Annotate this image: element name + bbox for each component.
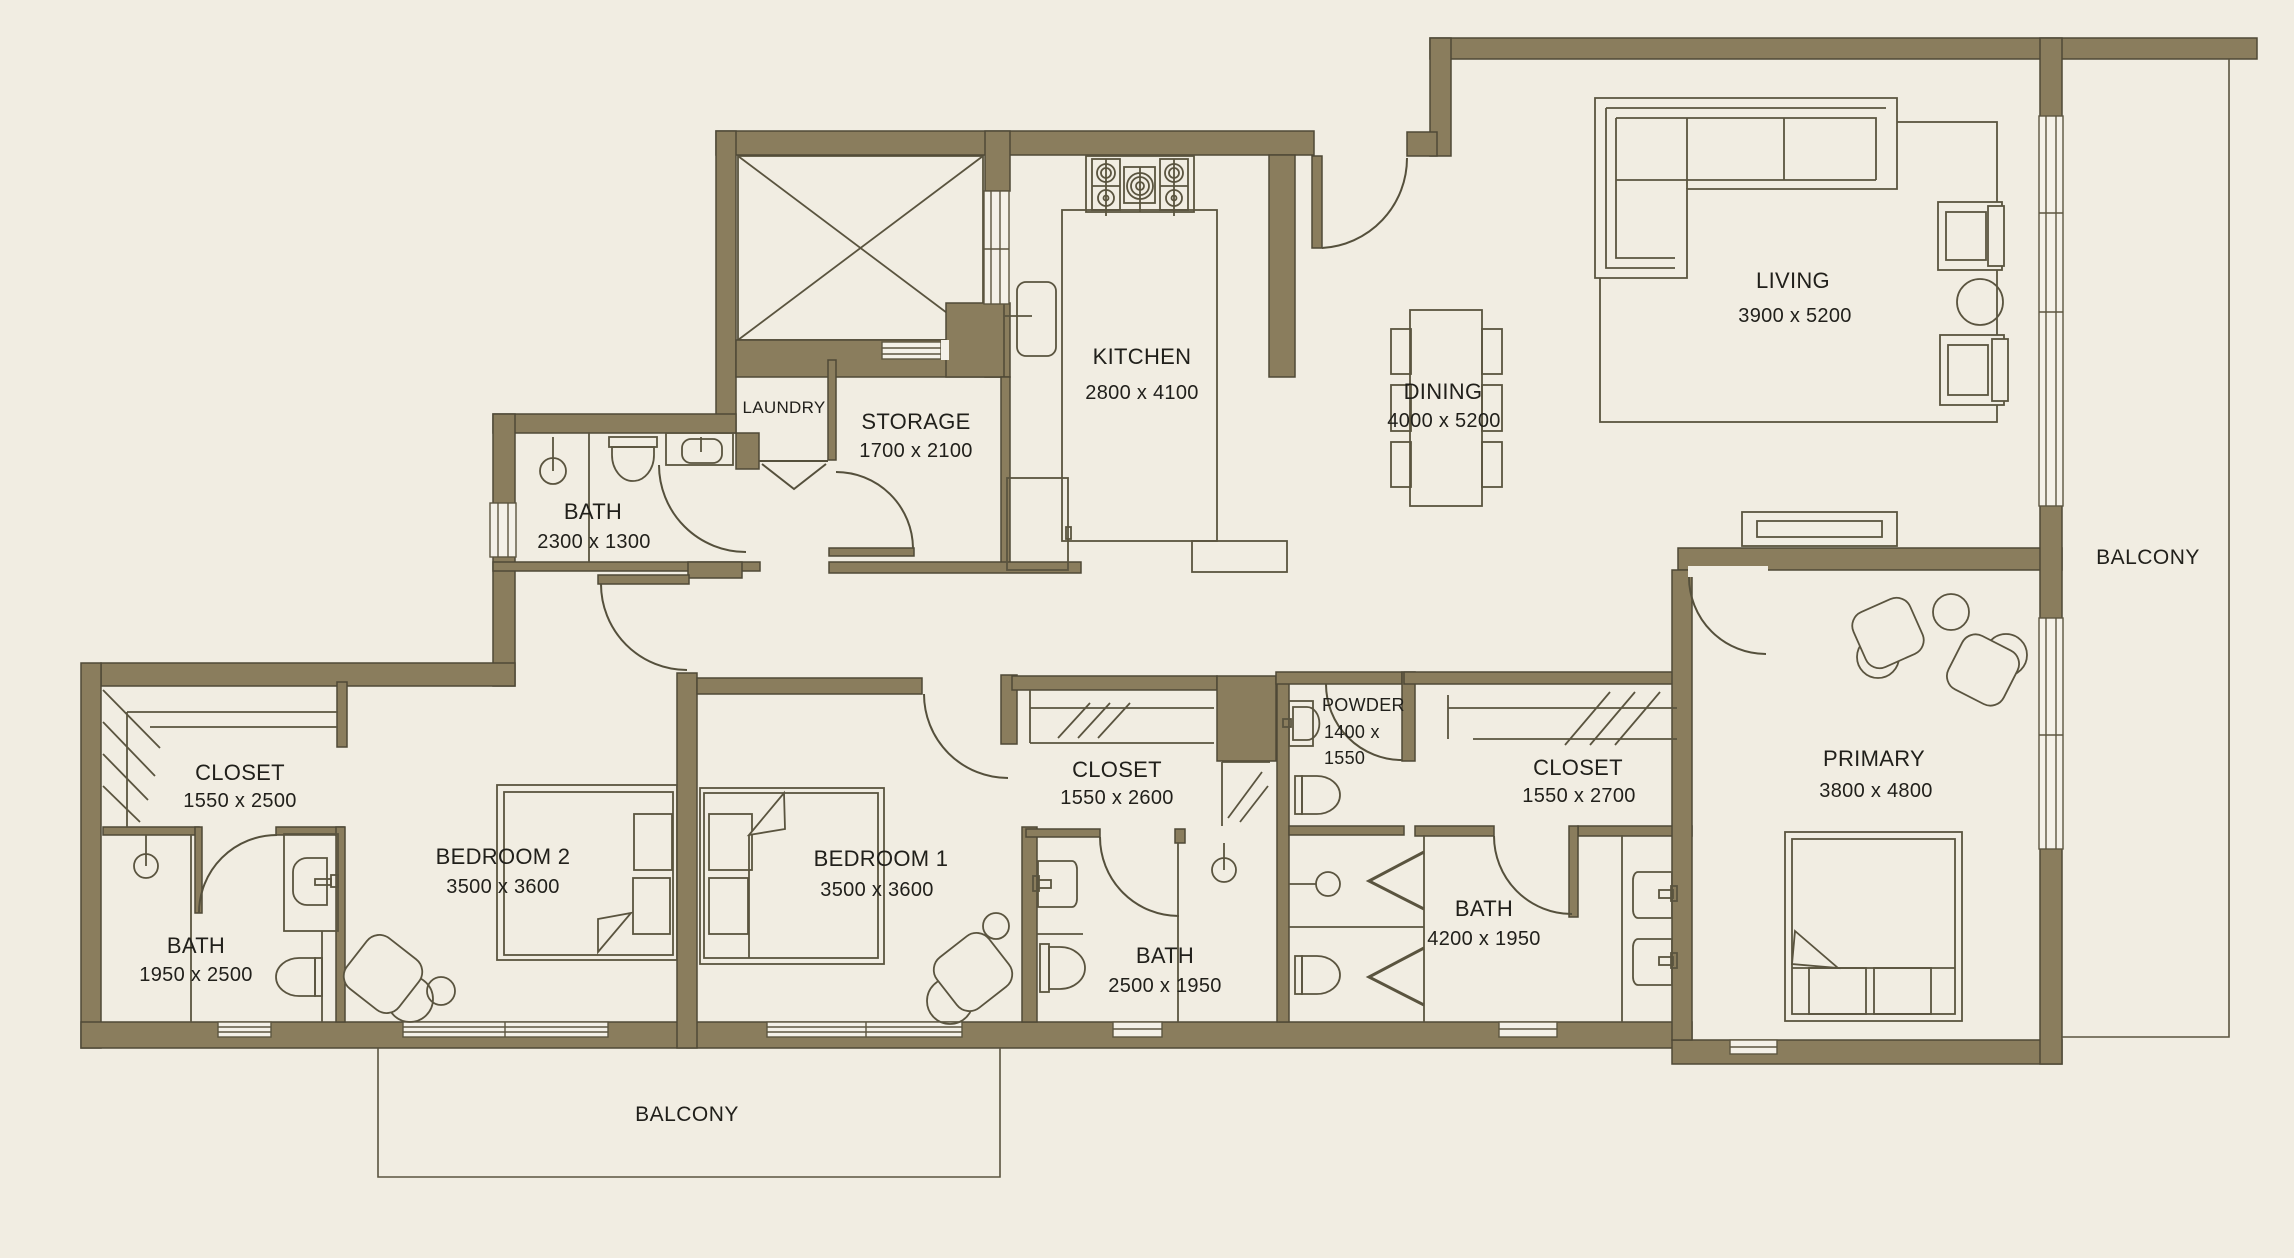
svg-text:BATH: BATH bbox=[1136, 943, 1194, 968]
svg-text:BATH: BATH bbox=[564, 499, 622, 524]
svg-text:BEDROOM 2: BEDROOM 2 bbox=[436, 844, 571, 869]
svg-text:2500 x 1950: 2500 x 1950 bbox=[1108, 975, 1221, 997]
svg-text:BALCONY: BALCONY bbox=[2096, 546, 2200, 569]
svg-text:CLOSET: CLOSET bbox=[195, 760, 285, 785]
svg-text:3500 x 3600: 3500 x 3600 bbox=[820, 879, 933, 901]
svg-text:LAUNDRY: LAUNDRY bbox=[742, 398, 825, 417]
svg-text:1950 x 2500: 1950 x 2500 bbox=[139, 964, 252, 986]
svg-text:CLOSET: CLOSET bbox=[1072, 757, 1162, 782]
svg-text:2800 x 4100: 2800 x 4100 bbox=[1085, 382, 1198, 404]
svg-text:PRIMARY: PRIMARY bbox=[1823, 746, 1925, 771]
svg-text:CLOSET: CLOSET bbox=[1533, 755, 1623, 780]
svg-text:4000 x 5200: 4000 x 5200 bbox=[1387, 410, 1500, 432]
svg-text:LIVING: LIVING bbox=[1756, 268, 1830, 293]
svg-text:1700 x 2100: 1700 x 2100 bbox=[859, 440, 972, 462]
svg-text:1550 x 2500: 1550 x 2500 bbox=[183, 790, 296, 812]
svg-text:KITCHEN: KITCHEN bbox=[1093, 344, 1192, 369]
svg-text:BEDROOM 1: BEDROOM 1 bbox=[814, 846, 949, 871]
svg-text:2300 x 1300: 2300 x 1300 bbox=[537, 531, 650, 553]
svg-text:3500 x 3600: 3500 x 3600 bbox=[446, 876, 559, 898]
svg-text:4200 x 1950: 4200 x 1950 bbox=[1427, 928, 1540, 950]
svg-text:BATH: BATH bbox=[167, 933, 225, 958]
svg-text:STORAGE: STORAGE bbox=[861, 409, 970, 434]
svg-text:DINING: DINING bbox=[1404, 379, 1483, 404]
svg-text:BATH: BATH bbox=[1455, 896, 1513, 921]
svg-text:3900 x 5200: 3900 x 5200 bbox=[1738, 305, 1851, 327]
svg-text:3800 x 4800: 3800 x 4800 bbox=[1819, 780, 1932, 802]
svg-text:1550 x 2600: 1550 x 2600 bbox=[1060, 787, 1173, 809]
svg-text:BALCONY: BALCONY bbox=[635, 1103, 739, 1126]
svg-text:POWDER: POWDER bbox=[1322, 695, 1405, 715]
svg-text:1550 x 2700: 1550 x 2700 bbox=[1522, 785, 1635, 807]
svg-text:1550: 1550 bbox=[1324, 748, 1365, 768]
svg-text:1400 x: 1400 x bbox=[1324, 722, 1380, 742]
